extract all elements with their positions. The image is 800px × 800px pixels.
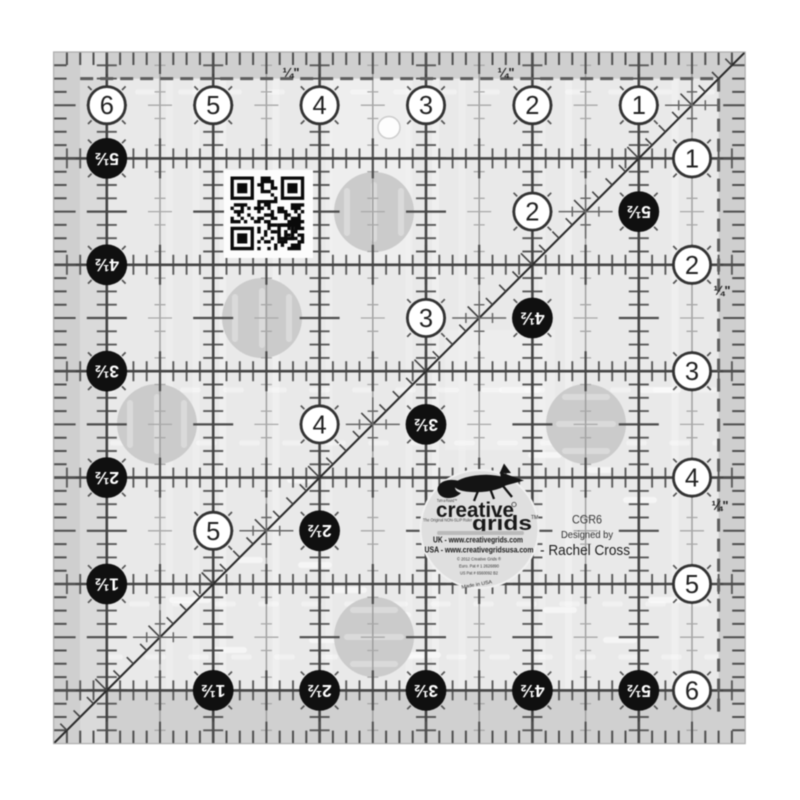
svg-text:5: 5 <box>206 518 220 546</box>
svg-text:3½: 3½ <box>414 681 438 701</box>
svg-text:2: 2 <box>525 92 539 120</box>
svg-text:2½: 2½ <box>307 521 331 541</box>
svg-text:6: 6 <box>685 677 699 705</box>
svg-text:3½: 3½ <box>95 362 119 382</box>
svg-text:Euro. Pat # 1 2626890: Euro. Pat # 1 2626890 <box>459 564 499 569</box>
svg-text:The Original NON-SLIP Ruler: The Original NON-SLIP Ruler <box>423 518 472 523</box>
svg-text:1½: 1½ <box>201 681 225 701</box>
svg-text:3½: 3½ <box>414 415 438 435</box>
svg-text:5½: 5½ <box>627 681 651 701</box>
svg-text:- Rachel Cross: - Rachel Cross <box>540 543 630 559</box>
svg-text:USA - www.creativegridsusa.com: USA - www.creativegridsusa.com <box>425 546 534 555</box>
svg-text:4½: 4½ <box>520 308 544 328</box>
svg-text:3: 3 <box>419 92 433 120</box>
svg-text:4: 4 <box>313 92 327 120</box>
svg-text:3: 3 <box>685 358 699 386</box>
svg-text:2½: 2½ <box>95 468 119 488</box>
svg-text:¼": ¼" <box>497 65 514 80</box>
svg-text:TM: TM <box>531 515 538 521</box>
svg-text:3: 3 <box>419 305 433 333</box>
svg-text:2: 2 <box>685 252 699 280</box>
svg-text:4: 4 <box>685 465 699 493</box>
svg-text:1: 1 <box>685 145 699 173</box>
svg-text:5: 5 <box>685 571 699 599</box>
svg-text:1½: 1½ <box>95 574 119 594</box>
svg-text:5½: 5½ <box>95 149 119 169</box>
svg-text:5½: 5½ <box>627 202 651 222</box>
svg-text:CGR6: CGR6 <box>572 515 602 527</box>
svg-text:1: 1 <box>632 92 646 120</box>
svg-text:4½: 4½ <box>95 255 119 275</box>
svg-text:¼": ¼" <box>711 498 728 513</box>
svg-text:2: 2 <box>525 199 539 227</box>
svg-text:US Pat # 6560092 B2: US Pat # 6560092 B2 <box>460 571 498 576</box>
svg-text:4: 4 <box>313 411 327 439</box>
svg-text:2½: 2½ <box>307 681 331 701</box>
svg-text:6: 6 <box>100 92 114 120</box>
svg-text:© 2012 Creative Grids ®: © 2012 Creative Grids ® <box>457 556 502 562</box>
svg-text:UK - www.creativegrids.com: UK - www.creativegrids.com <box>433 536 523 545</box>
svg-text:5: 5 <box>206 92 220 120</box>
svg-text:4½: 4½ <box>520 681 544 701</box>
svg-text:¼": ¼" <box>713 283 730 298</box>
svg-text:¼": ¼" <box>282 65 299 80</box>
svg-text:Designed by: Designed by <box>561 529 614 541</box>
